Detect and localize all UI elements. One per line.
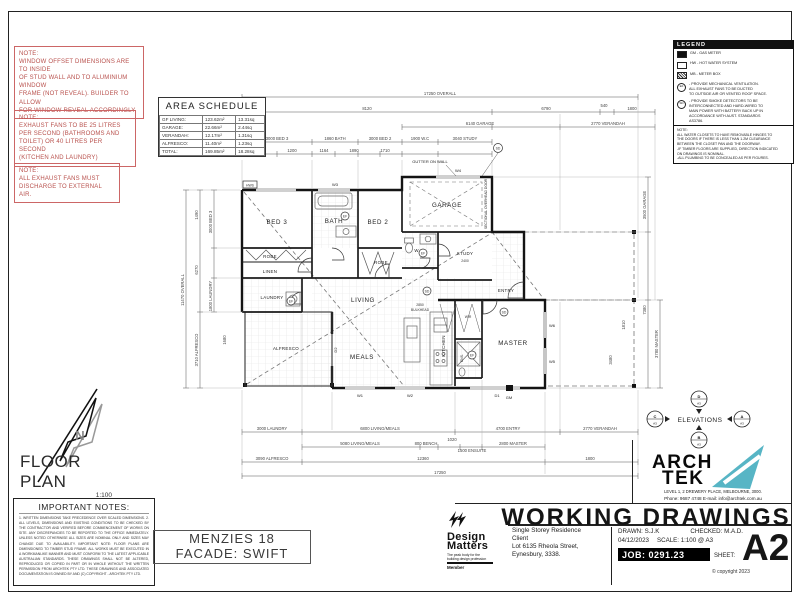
- window-label-w6: W6: [549, 323, 556, 328]
- floor-plan-title: FLOOR PLAN 1:100: [20, 452, 112, 499]
- dim-label: 1490: [194, 210, 199, 220]
- legend-item: SD - PROVIDE SMOKE DETECTORS TO BE INTER…: [674, 98, 793, 125]
- legend-item: MB - METER BOX: [674, 70, 793, 81]
- gutter-note: GUTTER ON WALL: [412, 159, 448, 164]
- room-label-study-size: 2400: [461, 259, 469, 263]
- room-label-robe2: ROBE: [374, 260, 388, 265]
- area-sq: 1.31sq: [236, 132, 265, 140]
- table-row: GARAGE: 22.66m² 2.44sq: [160, 124, 265, 132]
- room-label-master: MASTER: [498, 340, 527, 347]
- dim-label: 3040 STUDY: [453, 136, 478, 141]
- design-matters-logo: Design Matters The peak body for the bui…: [447, 511, 507, 570]
- dim-label: 1890: [349, 148, 359, 153]
- copyright-note: © copyright 2023: [712, 569, 750, 575]
- dim-label: 3780 MASTER: [654, 330, 659, 358]
- dim-label: 17250: [434, 470, 446, 475]
- project-info: Single Storey Residence Client Lot 6135 …: [512, 527, 608, 559]
- area-name: GF LIVING:: [160, 116, 203, 124]
- floor-plan-title-text: FLOOR PLAN: [20, 452, 112, 492]
- dim-label: 2770 VERANDAH: [583, 426, 617, 431]
- dim-label: 1800 LAUNDRY: [208, 281, 213, 312]
- legend-item-label: - PROVIDE SMOKE DETECTORS TO BE INTERCON…: [689, 99, 763, 123]
- table-row: VERANDAH: 12.17m² 1.31sq: [160, 132, 265, 140]
- room-label-study: STUDY: [457, 251, 473, 256]
- legend-item: HW - HOT WATER SYSTEM: [674, 60, 793, 71]
- design-matters-member: Member: [447, 565, 507, 570]
- room-label-robe1: ROBE: [263, 254, 277, 259]
- dim-label: 1710: [380, 148, 390, 153]
- elevation-ref-top: D: [698, 394, 701, 399]
- ef-marker: EF: [470, 354, 474, 358]
- area-name: GARAGE:: [160, 124, 203, 132]
- drawn-checked-row: DRAWN: S.J.K CHECKED: M.A.D.: [618, 528, 743, 535]
- project-suburb: Eynesbury, 3338.: [512, 551, 608, 559]
- area-m2: 12.17m²: [203, 132, 236, 140]
- room-label-wir: WIR: [465, 315, 472, 319]
- bulkhead-note-value: 2850: [416, 303, 424, 307]
- design-matters-name-bottom: Matters: [447, 542, 507, 551]
- titleblock-divider: [632, 440, 633, 503]
- legend-title: LEGEND: [674, 41, 793, 49]
- room-label-garage: GARAGE: [432, 202, 462, 209]
- legend-item: GM - GAS METER: [674, 49, 793, 60]
- checked-by: CHECKED: M.A.D.: [690, 528, 743, 535]
- north-letter: N: [75, 428, 84, 443]
- area-m2: 11.40m²: [203, 140, 236, 148]
- drawing-scale: SCALE: 1:100 @ A3: [657, 537, 713, 544]
- dim-label: 1900 W.C: [411, 136, 429, 141]
- room-label-bed3: BED 3: [267, 219, 288, 226]
- note-discharge: NOTE: ALL EXHAUST FANS MUST DISCHARGE TO…: [14, 163, 120, 203]
- area-m2: 123.62m²: [203, 116, 236, 124]
- ef-marker: EF: [289, 300, 293, 304]
- elevations-label: ELEVATIONS: [678, 417, 723, 424]
- ef-marker: EF: [421, 252, 425, 256]
- dim-label: 3000 LAUNDRY: [257, 426, 288, 431]
- dim-label: 11470 OVERALL: [180, 273, 185, 305]
- archtek-phone: Phone: 9687 4748 E-mail: info@archtek.co…: [634, 496, 792, 501]
- archtek-wordmark: ARCH TEK: [652, 455, 713, 486]
- sd-marker: SD: [425, 290, 430, 294]
- dim-label: 2800 MASTER: [499, 441, 527, 446]
- room-label-meals: MEALS: [350, 354, 374, 361]
- legend-item-label: - PROVIDE MECHANICAL VENTILATION. ALL EX…: [689, 82, 767, 96]
- dim-label: 17250 OVERALL: [424, 91, 457, 96]
- titleblock-divider: [611, 527, 612, 585]
- dim-label: 1800: [585, 456, 595, 461]
- note-window-offset: NOTE: WINDOW OFFSET DIMENSIONS ARE TO IN…: [14, 46, 144, 119]
- important-notes-title: IMPORTANT NOTES:: [19, 502, 149, 514]
- elevation-ref-left: C: [654, 414, 657, 419]
- elevations-widget: ELEVATIONS D A3 B A3 C A3 A A3: [647, 391, 750, 448]
- table-row: GF LIVING: 123.62m² 13.31sq: [160, 116, 265, 124]
- dim-label: 3000 BED 3: [266, 136, 289, 141]
- meter-box-icon: [677, 72, 687, 79]
- bulkhead-note-text: BULKHEAD: [411, 308, 430, 312]
- sheet-label: SHEET:: [714, 553, 735, 559]
- design-matters-icon: [447, 511, 467, 528]
- elevation-ref-right: A: [741, 414, 744, 419]
- hws-marker: HWS: [246, 183, 255, 187]
- legend: LEGEND GM - GAS METER HW - HOT WATER SYS…: [673, 40, 794, 164]
- dim-label: 3000 BED 3: [208, 210, 213, 233]
- design-matters-tagline: The peak body for the building design pr…: [447, 553, 493, 564]
- area-sq: 18.28sq: [236, 148, 265, 156]
- project-type: Single Storey Residence: [512, 527, 608, 535]
- sheet-number: A2: [742, 527, 789, 569]
- archtek-arrow-icon: [710, 443, 766, 489]
- date-scale-row: 04/12/2023 SCALE: 1:100 @ A3: [618, 537, 740, 544]
- ef-marker: EF: [343, 215, 347, 219]
- table-row: ALFRESCO: 11.40m² 1.23sq: [160, 140, 265, 148]
- area-sq: 13.31sq: [236, 116, 265, 124]
- window-label-w5: W5: [549, 359, 556, 364]
- legend-item: EF - PROVIDE MECHANICAL VENTILATION. ALL…: [674, 81, 793, 98]
- important-notes-body: 1. WRITTEN DIMENSIONS TAKE PRECEDENCE OV…: [19, 516, 149, 577]
- room-label-bath: BATH: [325, 218, 343, 225]
- gm-marker: GM: [506, 395, 512, 400]
- dim-label: 1164: [319, 148, 329, 153]
- area-m2: 22.66m²: [203, 124, 236, 132]
- area-schedule-title: AREA SCHEDULE: [159, 98, 265, 115]
- dim-label: 6800 LIVING/MEALS: [360, 426, 400, 431]
- area-name: TOTAL:: [160, 148, 203, 156]
- room-label-alfresco: ALFRESCO: [273, 346, 299, 351]
- room-label-linen: LINEN: [263, 269, 277, 274]
- hot-water-icon: [677, 62, 687, 69]
- dim-label: 3000 BED 2: [369, 136, 392, 141]
- door-label-d1: D1: [494, 393, 500, 398]
- elevation-sheet: A3: [740, 422, 744, 426]
- dim-label: 6790: [541, 106, 551, 111]
- elevation-sheet: A3: [653, 422, 657, 426]
- dim-label: 3710 ALFRESCO: [194, 333, 199, 367]
- dim-label: 3090 ALFRESCO: [256, 456, 290, 461]
- garage-door-note: SECTIONAL OVERHEAD DOOR: [484, 178, 488, 229]
- legend-note: NOTE: ALL WATER CLOSETS TO HAVE REMOVABL…: [674, 125, 793, 163]
- sd-marker: SD: [496, 147, 501, 151]
- dim-label: 8120: [362, 106, 372, 111]
- dim-label: 4700 ENTRY: [496, 426, 521, 431]
- dim-label: 1860 BATH: [324, 136, 345, 141]
- dim-label: 540: [601, 103, 609, 108]
- elevation-sheet: A3: [697, 402, 701, 406]
- room-label-bed2: BED 2: [368, 219, 389, 226]
- drawn-by: DRAWN: S.J.K: [618, 528, 659, 535]
- dim-label: 1680: [222, 335, 227, 345]
- dim-label: 3480: [608, 355, 613, 365]
- dim-label: 800 BENCH: [415, 441, 438, 446]
- dim-label: 12360: [417, 456, 429, 461]
- model-name: MENZIES 18: [189, 532, 275, 547]
- drawing-sheet: 17250 OVERALL 8120 6790 540 1800 6140 GA…: [0, 0, 800, 600]
- smoke-detector-icon: SD: [677, 100, 686, 109]
- dim-label: 3500 GARAGE: [642, 191, 647, 220]
- window-label-w1: W1: [357, 393, 364, 398]
- dim-label: 1800: [627, 106, 637, 111]
- elevation-ref-bottom: B: [698, 435, 701, 440]
- dim-label: 1020: [447, 437, 457, 442]
- project-client: Client: [512, 535, 608, 543]
- project-address: Lot 6135 Rheola Street,: [512, 543, 608, 551]
- window-label-w2: W2: [407, 393, 414, 398]
- dim-label: 6270: [194, 265, 199, 275]
- room-label-ens: ENS.: [460, 354, 464, 362]
- area-sq: 2.44sq: [236, 124, 265, 132]
- room-label-laundry: LAUNDRY: [260, 295, 283, 300]
- dim-label: 1810: [621, 320, 626, 330]
- facade-name: FACADE: SWIFT: [176, 547, 289, 562]
- legend-item-label: HW - HOT WATER SYSTEM: [690, 61, 737, 66]
- area-name: ALFRESCO:: [160, 140, 203, 148]
- dim-label: 2770 VERANDAH: [591, 121, 625, 126]
- archtek-word-bottom: TEK: [652, 471, 713, 487]
- dim-label: 7380: [642, 305, 647, 315]
- area-name: VERANDAH:: [160, 132, 203, 140]
- door-label-d2: D2: [333, 347, 338, 353]
- window-label-w3: W3: [332, 182, 339, 187]
- area-schedule: AREA SCHEDULE GF LIVING: 123.62m² 13.31s…: [158, 97, 266, 157]
- table-row: TOTAL: 169.85m² 18.28sq: [160, 148, 265, 156]
- window-label-w4: W4: [455, 168, 462, 173]
- important-notes: IMPORTANT NOTES: 1. WRITTEN DIMENSIONS T…: [13, 498, 155, 586]
- legend-item-label: GM - GAS METER: [690, 51, 721, 56]
- archtek-address: LEVEL 1, 2 DREWERY PLACE, MELBOURNE, 300…: [634, 489, 792, 494]
- area-sq: 1.23sq: [236, 140, 265, 148]
- sd-marker: SD: [502, 311, 507, 315]
- dim-label: 1200: [287, 148, 297, 153]
- archtek-logo: ARCH TEK LEVEL 1, 2 DREWERY PLACE, MELBO…: [634, 441, 792, 503]
- note-exhaust-fans: NOTE: EXHAUST FANS TO BE 25 LITRES PER S…: [14, 110, 136, 167]
- dim-label: 1500 ENSUITE: [458, 448, 487, 453]
- job-number-badge: JOB: 0291.23: [618, 548, 710, 561]
- exhaust-fan-icon: EF: [677, 83, 686, 92]
- legend-item-label: MB - METER BOX: [690, 72, 721, 77]
- facade-box: MENZIES 18 FACADE: SWIFT: [153, 530, 311, 564]
- area-schedule-table: GF LIVING: 123.62m² 13.31sq GARAGE: 22.6…: [159, 115, 265, 156]
- room-label-living: LIVING: [351, 297, 375, 304]
- room-label-entry: ENTRY: [498, 288, 514, 293]
- drawing-date: 04/12/2023: [618, 537, 649, 544]
- area-m2: 169.85m²: [203, 148, 236, 156]
- dim-label: 5080 LIVING/MEALS: [340, 441, 380, 446]
- dim-label: 6140 GARAGE: [466, 121, 495, 126]
- gas-meter-icon: [677, 51, 687, 58]
- room-label-kitchen: KITCHEN: [441, 335, 446, 356]
